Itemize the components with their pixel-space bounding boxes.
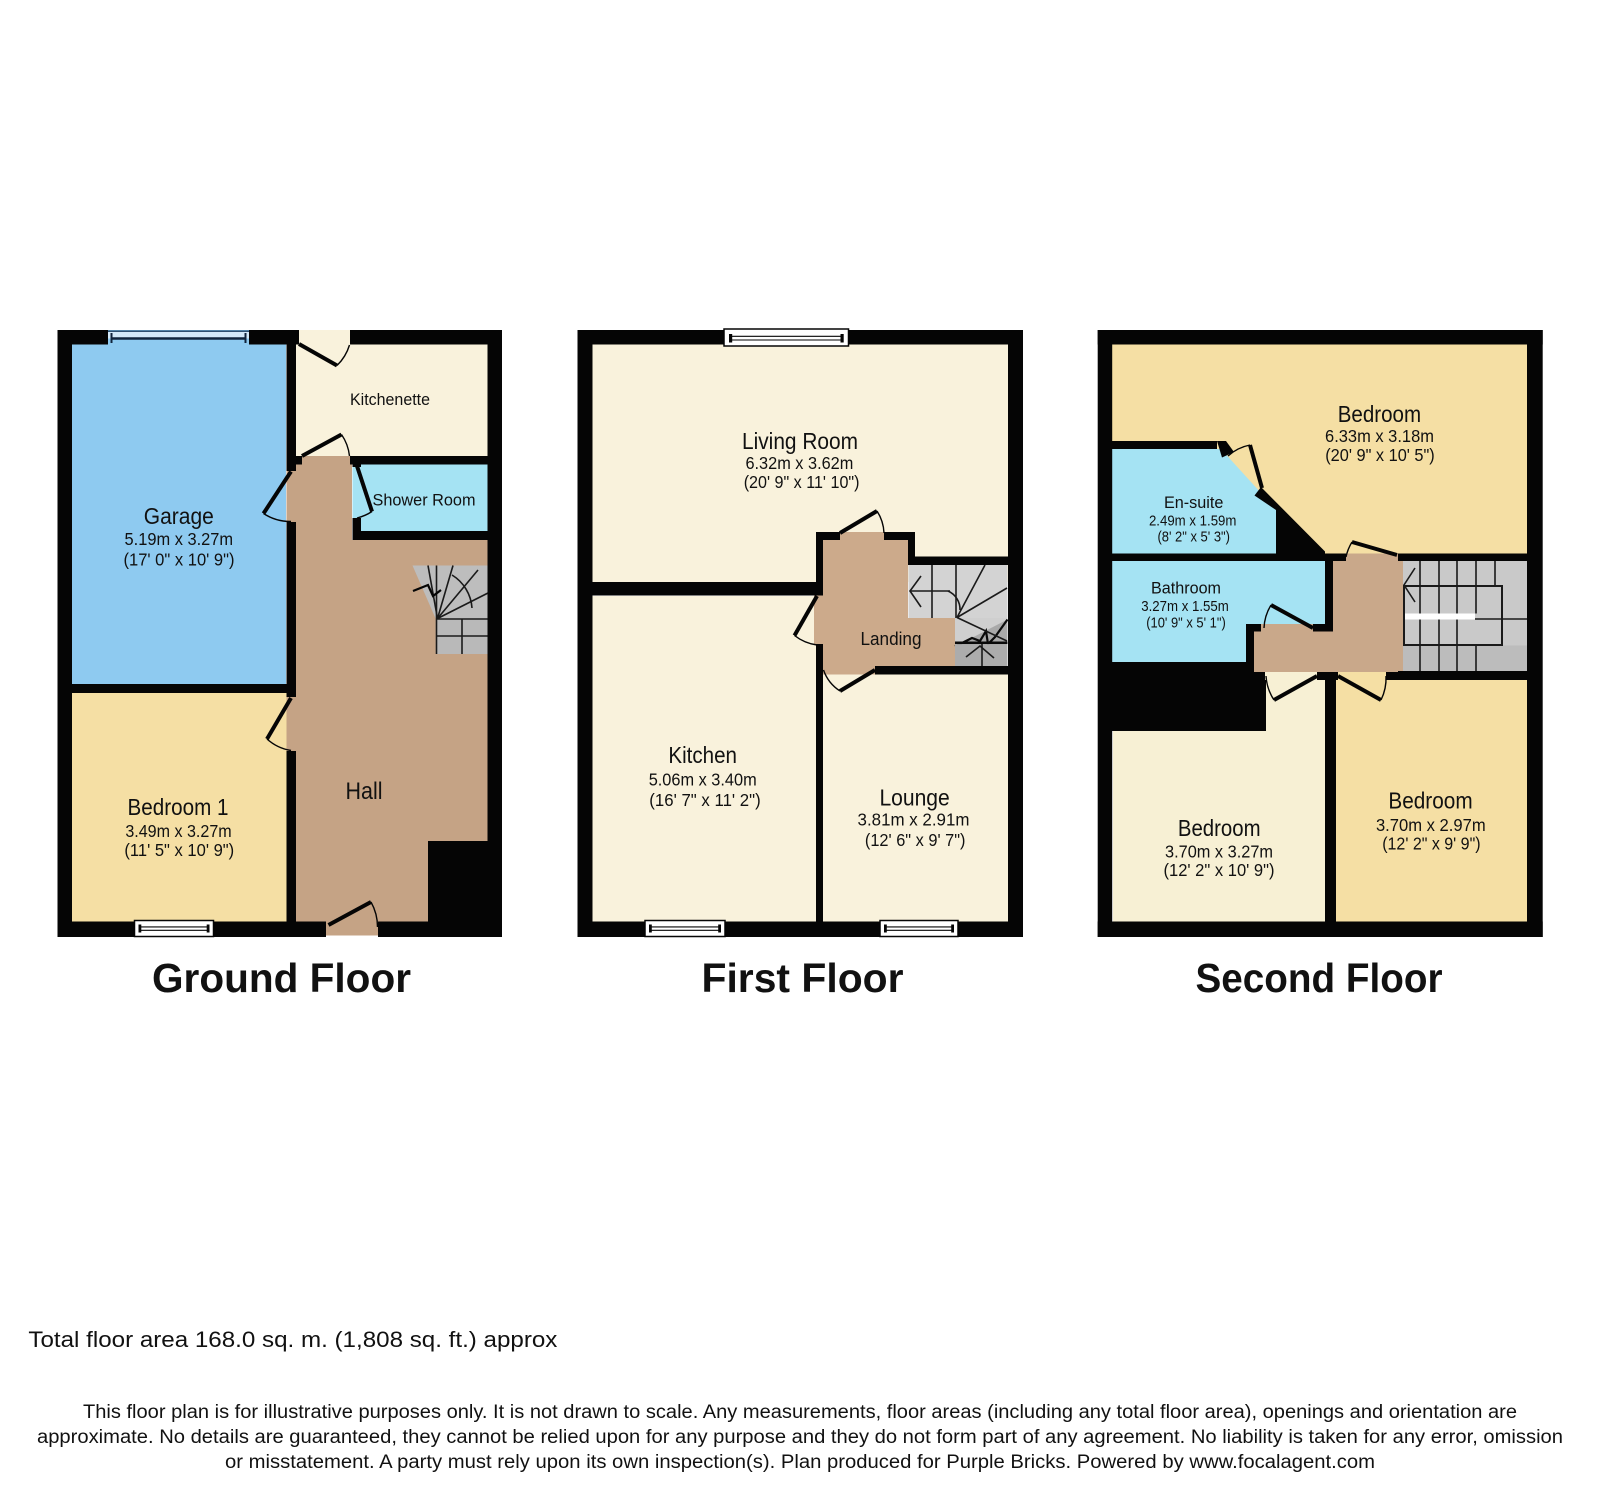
- svg-text:2.49m x 1.59m: 2.49m x 1.59m: [1149, 513, 1237, 530]
- svg-text:Living Room: Living Room: [742, 428, 858, 454]
- svg-text:3.70m x 3.27m: 3.70m x 3.27m: [1165, 842, 1273, 862]
- svg-text:Bedroom: Bedroom: [1388, 788, 1472, 814]
- svg-text:or misstatement. A party must: or misstatement. A party must rely upon …: [225, 1452, 1375, 1473]
- svg-text:Bedroom 1: Bedroom 1: [128, 794, 229, 820]
- svg-text:First Floor: First Floor: [702, 955, 904, 1001]
- svg-text:Bedroom: Bedroom: [1178, 815, 1261, 841]
- svg-text:6.33m x 3.18m: 6.33m x 3.18m: [1325, 426, 1434, 446]
- svg-text:3.70m x 2.97m: 3.70m x 2.97m: [1376, 815, 1486, 835]
- svg-text:(8' 2" x 5' 3"): (8' 2" x 5' 3"): [1157, 529, 1230, 546]
- svg-text:(12' 6" x 9' 7"): (12' 6" x 9' 7"): [865, 830, 966, 850]
- svg-text:Garage: Garage: [144, 503, 214, 529]
- svg-text:Hall: Hall: [346, 778, 383, 805]
- svg-text:(12' 2" x 10' 9"): (12' 2" x 10' 9"): [1164, 860, 1275, 880]
- svg-text:Shower Room: Shower Room: [373, 491, 476, 510]
- svg-text:(12' 2" x 9' 9"): (12' 2" x 9' 9"): [1382, 834, 1480, 854]
- svg-text:3.49m x 3.27m: 3.49m x 3.27m: [125, 821, 231, 841]
- svg-text:6.32m x 3.62m: 6.32m x 3.62m: [745, 453, 853, 473]
- svg-text:This floor plan is for illustr: This floor plan is for illustrative purp…: [83, 1402, 1517, 1423]
- svg-text:(16' 7" x 11' 2"): (16' 7" x 11' 2"): [649, 790, 760, 810]
- svg-text:approximate. No details are gu: approximate. No details are guaranteed, …: [37, 1427, 1563, 1448]
- svg-text:3.27m x 1.55m: 3.27m x 1.55m: [1141, 598, 1229, 615]
- svg-text:(20' 9" x 11' 10"): (20' 9" x 11' 10"): [744, 472, 860, 492]
- svg-text:En-suite: En-suite: [1164, 493, 1224, 512]
- svg-text:(11' 5" x 10' 9"): (11' 5" x 10' 9"): [124, 840, 234, 860]
- svg-text:Landing: Landing: [861, 629, 922, 649]
- svg-text:Ground Floor: Ground Floor: [152, 955, 411, 1001]
- svg-text:(10' 9" x 5' 1"): (10' 9" x 5' 1"): [1146, 615, 1226, 632]
- svg-text:Lounge: Lounge: [879, 785, 949, 811]
- svg-text:Kitchenette: Kitchenette: [350, 390, 430, 409]
- svg-text:Bathroom: Bathroom: [1151, 579, 1221, 598]
- svg-text:Second Floor: Second Floor: [1196, 955, 1443, 1001]
- svg-text:(17' 0" x 10' 9"): (17' 0" x 10' 9"): [124, 550, 235, 570]
- svg-text:3.81m x 2.91m: 3.81m x 2.91m: [858, 810, 970, 830]
- svg-text:(20' 9" x 10' 5"): (20' 9" x 10' 5"): [1325, 445, 1435, 465]
- svg-text:Total floor area 168.0 sq. m.: Total floor area 168.0 sq. m. (1,808 sq.…: [28, 1327, 557, 1352]
- svg-text:5.06m x 3.40m: 5.06m x 3.40m: [649, 770, 757, 790]
- svg-text:Kitchen: Kitchen: [668, 742, 737, 768]
- svg-text:Bedroom: Bedroom: [1338, 401, 1421, 427]
- svg-text:5.19m x 3.27m: 5.19m x 3.27m: [125, 529, 234, 549]
